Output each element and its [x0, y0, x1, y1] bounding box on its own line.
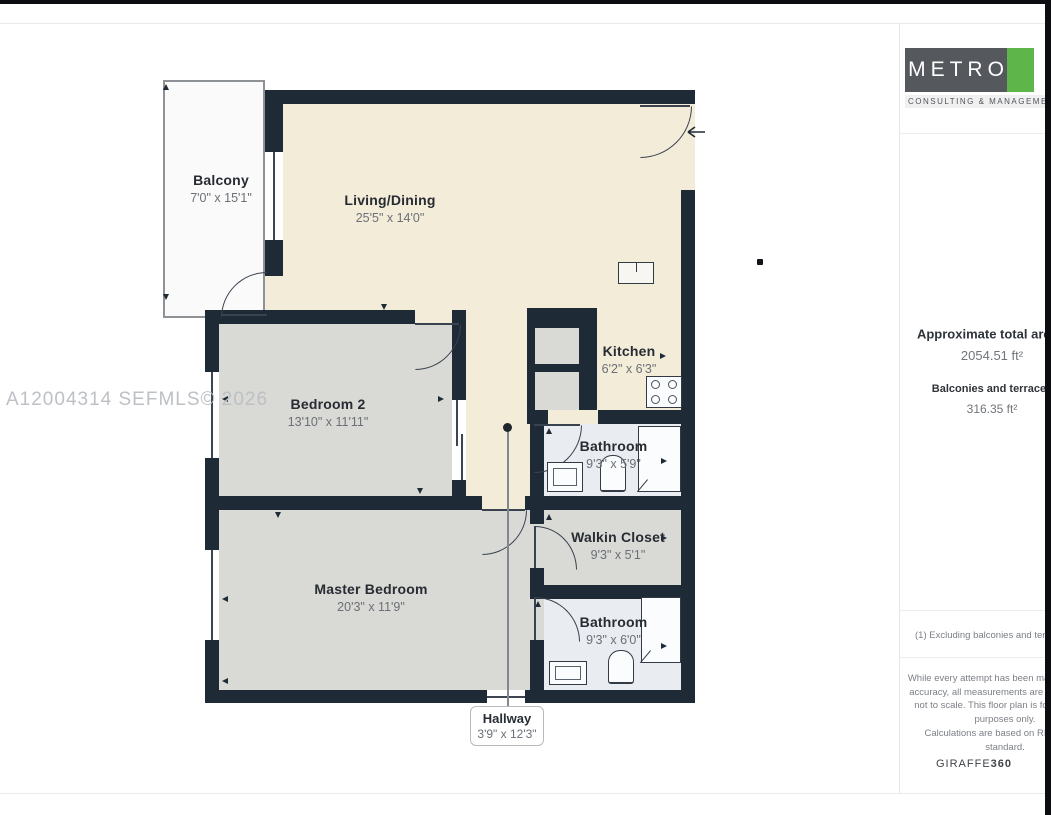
room-hallway [466, 320, 530, 510]
sidebar-left-border [899, 23, 900, 793]
dimension-tick [163, 294, 169, 300]
room-dimensions: 20'3" x 11'9" [271, 600, 471, 614]
sliding-door-line [456, 400, 458, 446]
room-dimensions: 6'2" x 6'3" [569, 362, 689, 376]
room-dimensions: 9'3" x 5'9" [546, 457, 681, 471]
bathroom1-door-leaf [534, 424, 580, 426]
sink-icon [549, 661, 587, 685]
window-glass-line [211, 550, 213, 640]
dimension-tick [163, 84, 169, 90]
room-dimensions: 9'3" x 5'1" [538, 548, 698, 562]
master-door-leaf [482, 509, 525, 511]
master-door-opening [482, 496, 525, 510]
sliding-door-line [461, 434, 463, 480]
sidebar-divider [899, 657, 1045, 658]
right-edge-bar [1045, 0, 1051, 815]
wall [205, 690, 487, 703]
dimension-tick [381, 304, 387, 310]
giraffe-suffix: 360 [991, 758, 1012, 770]
dimension-tick [384, 96, 390, 102]
entry-door-leaf [640, 105, 690, 107]
entry-arrow-icon [681, 123, 707, 141]
top-edge-bar [0, 0, 1051, 4]
room-dimensions: 25'5" x 14'0" [300, 211, 480, 225]
area-summary: Approximate total area(1) 2054.51 ft² Ba… [907, 326, 1051, 416]
top-hairline [0, 23, 1045, 24]
balconies-area-value: 316.35 ft² [907, 402, 1051, 416]
toilet-icon [608, 650, 634, 684]
giraffe-label: GIRAFFE [936, 758, 991, 770]
window-glass-line [211, 372, 213, 458]
wall [530, 640, 544, 690]
room-name: Bathroom [546, 614, 681, 630]
wall [530, 496, 681, 510]
wall [265, 90, 695, 104]
cabinet-icon [618, 262, 654, 284]
sidebar-divider [899, 133, 1045, 134]
wall [525, 690, 695, 703]
dimension-tick [222, 678, 228, 684]
logo-accent-square [1007, 48, 1034, 92]
wall [452, 480, 466, 496]
closet-door-leaf [534, 526, 536, 568]
kitchen-closet [535, 372, 579, 410]
wall [527, 410, 548, 424]
room-label-hallway: Hallway 3'9" x 12'3" [470, 706, 544, 746]
wall [205, 496, 482, 510]
sliding-door [452, 400, 466, 480]
room-name: Walkin Closet [538, 529, 698, 545]
floorplan-page: Balcony 7'0" x 15'1" Living/Dining 25'5"… [0, 0, 1051, 815]
dimension-tick [535, 601, 541, 607]
bottom-hairline [0, 793, 1045, 794]
giraffe360-logo: GIRAFFE360 [899, 758, 1049, 770]
plan-marker-dot [757, 259, 763, 265]
wall [598, 410, 681, 424]
area-footnote: (1) Excluding balconies and terraces [915, 630, 1051, 641]
dimension-tick [546, 514, 552, 520]
accuracy-disclaimer: While every attempt has been made to ens… [905, 672, 1051, 726]
room-name: Bathroom [546, 438, 681, 454]
total-area-title: Approximate total area(1) [907, 326, 1051, 341]
dimension-tick [417, 488, 423, 494]
standards-note: Calculations are based on RICS IPMS stan… [905, 727, 1051, 754]
room-dimensions: 3'9" x 12'3" [471, 727, 543, 741]
room-label-bathroom-1: Bathroom 9'3" x 5'9" [546, 438, 681, 471]
room-name: Kitchen [569, 343, 689, 359]
sidebar-divider [899, 610, 1045, 611]
room-dimensions: 13'10" x 11'11" [238, 415, 418, 429]
bedroom2-door-leaf [415, 323, 459, 325]
room-label-living-dining: Living/Dining 25'5" x 14'0" [300, 192, 480, 225]
hallway-leader-line [507, 431, 509, 706]
dimension-tick [535, 672, 541, 678]
hallway-anchor-dot [503, 423, 512, 432]
bathroom1-door-opening [548, 410, 598, 424]
room-label-bathroom-2: Bathroom 9'3" x 6'0" [546, 614, 681, 647]
dimension-tick [546, 428, 552, 434]
total-area-value: 2054.51 ft² [907, 348, 1051, 363]
dimension-tick [438, 396, 444, 402]
balcony-door-leaf [221, 314, 267, 316]
room-name: Balcony [161, 172, 281, 188]
wall [681, 190, 695, 703]
room-name: Living/Dining [300, 192, 480, 208]
stove-icon [646, 376, 682, 408]
dimension-tick [581, 324, 587, 330]
metro-logo: METRO [905, 48, 1007, 92]
wall [265, 240, 283, 276]
room-dimensions: 9'3" x 6'0" [546, 633, 681, 647]
wall [265, 90, 283, 152]
room-label-kitchen: Kitchen 6'2" x 6'3" [569, 343, 689, 376]
brand-tagline: CONSULTING & MANAGEMENT [905, 95, 1051, 108]
room-label-balcony: Balcony 7'0" x 15'1" [161, 172, 281, 205]
room-label-walkin-closet: Walkin Closet 9'3" x 5'1" [538, 529, 698, 562]
dimension-tick [275, 512, 281, 518]
balconies-area-label: Balconies and terraces [907, 383, 1051, 395]
room-dimensions: 7'0" x 15'1" [161, 191, 281, 205]
wall [205, 640, 219, 703]
window-glass-line [487, 696, 525, 698]
brand-name: METRO [903, 58, 1009, 82]
room-label-master-bedroom: Master Bedroom 20'3" x 11'9" [271, 581, 471, 614]
room-name: Master Bedroom [271, 581, 471, 597]
mls-watermark: A12004314 SEFMLS© 2026 [6, 389, 268, 411]
room-name: Hallway [471, 711, 543, 726]
total-area-label: Approximate total area [917, 326, 1051, 341]
dimension-tick [222, 596, 228, 602]
